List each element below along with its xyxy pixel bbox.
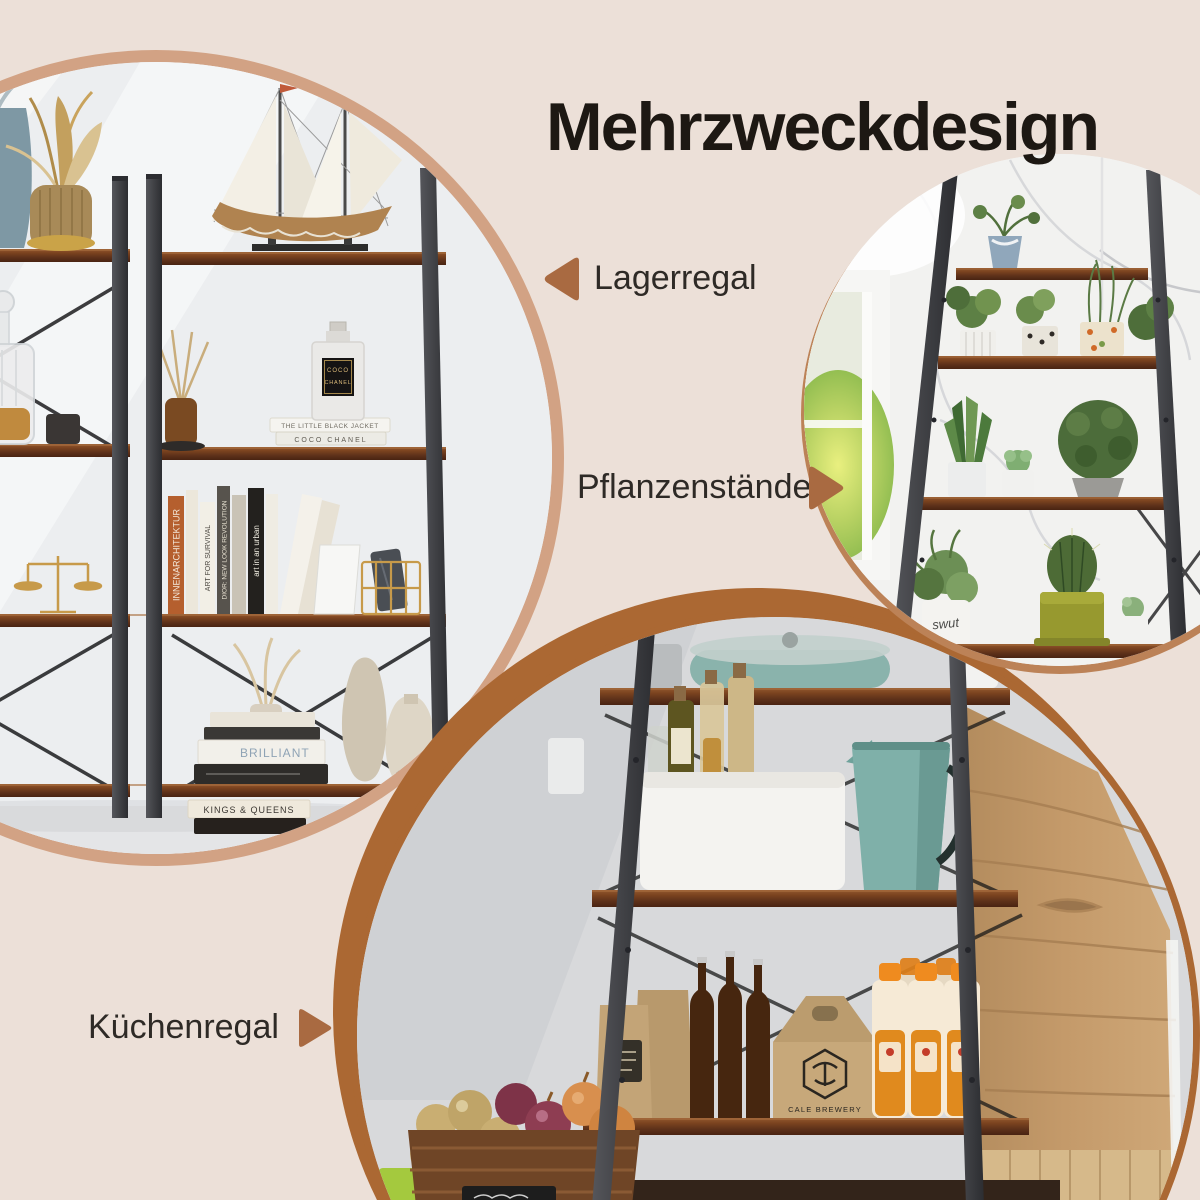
pflanzenstaender-label: Pflanzenständer [577, 469, 823, 506]
book-title-coco-chanel: COCO CHANEL [294, 437, 367, 444]
book-spine-art-in-an-urban: art in an urban [252, 525, 261, 577]
magazine-file [314, 545, 360, 614]
carrier-brand-text: CALE BREWERY [788, 1105, 862, 1114]
black-candle-jar [46, 414, 80, 444]
lagerregal-arrow-left-icon [542, 254, 584, 304]
book-title-brilliant: BRILLIANT [240, 746, 310, 760]
kuechenregal-arrow-right-icon [294, 1005, 334, 1051]
window [804, 270, 894, 580]
plant-stand-photo-circle: swut [804, 154, 1200, 666]
perfume-label-line2: CHANEL [324, 380, 351, 386]
book-spine-art-for-survival: ART FOR SURVIVAL [205, 525, 212, 591]
book-title-jacket: THE LITTLE BLACK JACKET [281, 423, 378, 430]
wall-switch-plate [548, 738, 584, 794]
perfume-label-line1: COCO [327, 368, 349, 374]
mug-script-text: swut [931, 615, 961, 633]
beer-bottles [690, 951, 770, 1118]
book-row: INNENARCHITEKTUR ART FOR SURVIVAL DIOR: … [168, 486, 340, 614]
lagerregal-label: Lagerregal [594, 260, 757, 297]
pflanzenstaender-arrow-right-icon [804, 462, 846, 514]
book-spine-dior: DIOR: NEW LOOK REVOLUTION [222, 500, 229, 599]
page-title: Mehrzweckdesign [546, 88, 1098, 166]
book-title-kings-queens: KINGS & QUEENS [203, 805, 294, 815]
book-spine-innenarchitektur: INNENARCHITEKTUR [172, 509, 182, 602]
succulent-small [1002, 450, 1034, 497]
poster-canvas: THE LITTLE BLACK JACKET COCO CHANEL COCO… [0, 0, 1200, 1200]
plant-stand-scene: swut [804, 154, 1200, 666]
floor-book-stack: KINGS & QUEENS [188, 800, 310, 834]
kuechenregal-label: Küchenregal [88, 1009, 279, 1046]
book-stack-brilliant: BRILLIANT [194, 712, 328, 784]
